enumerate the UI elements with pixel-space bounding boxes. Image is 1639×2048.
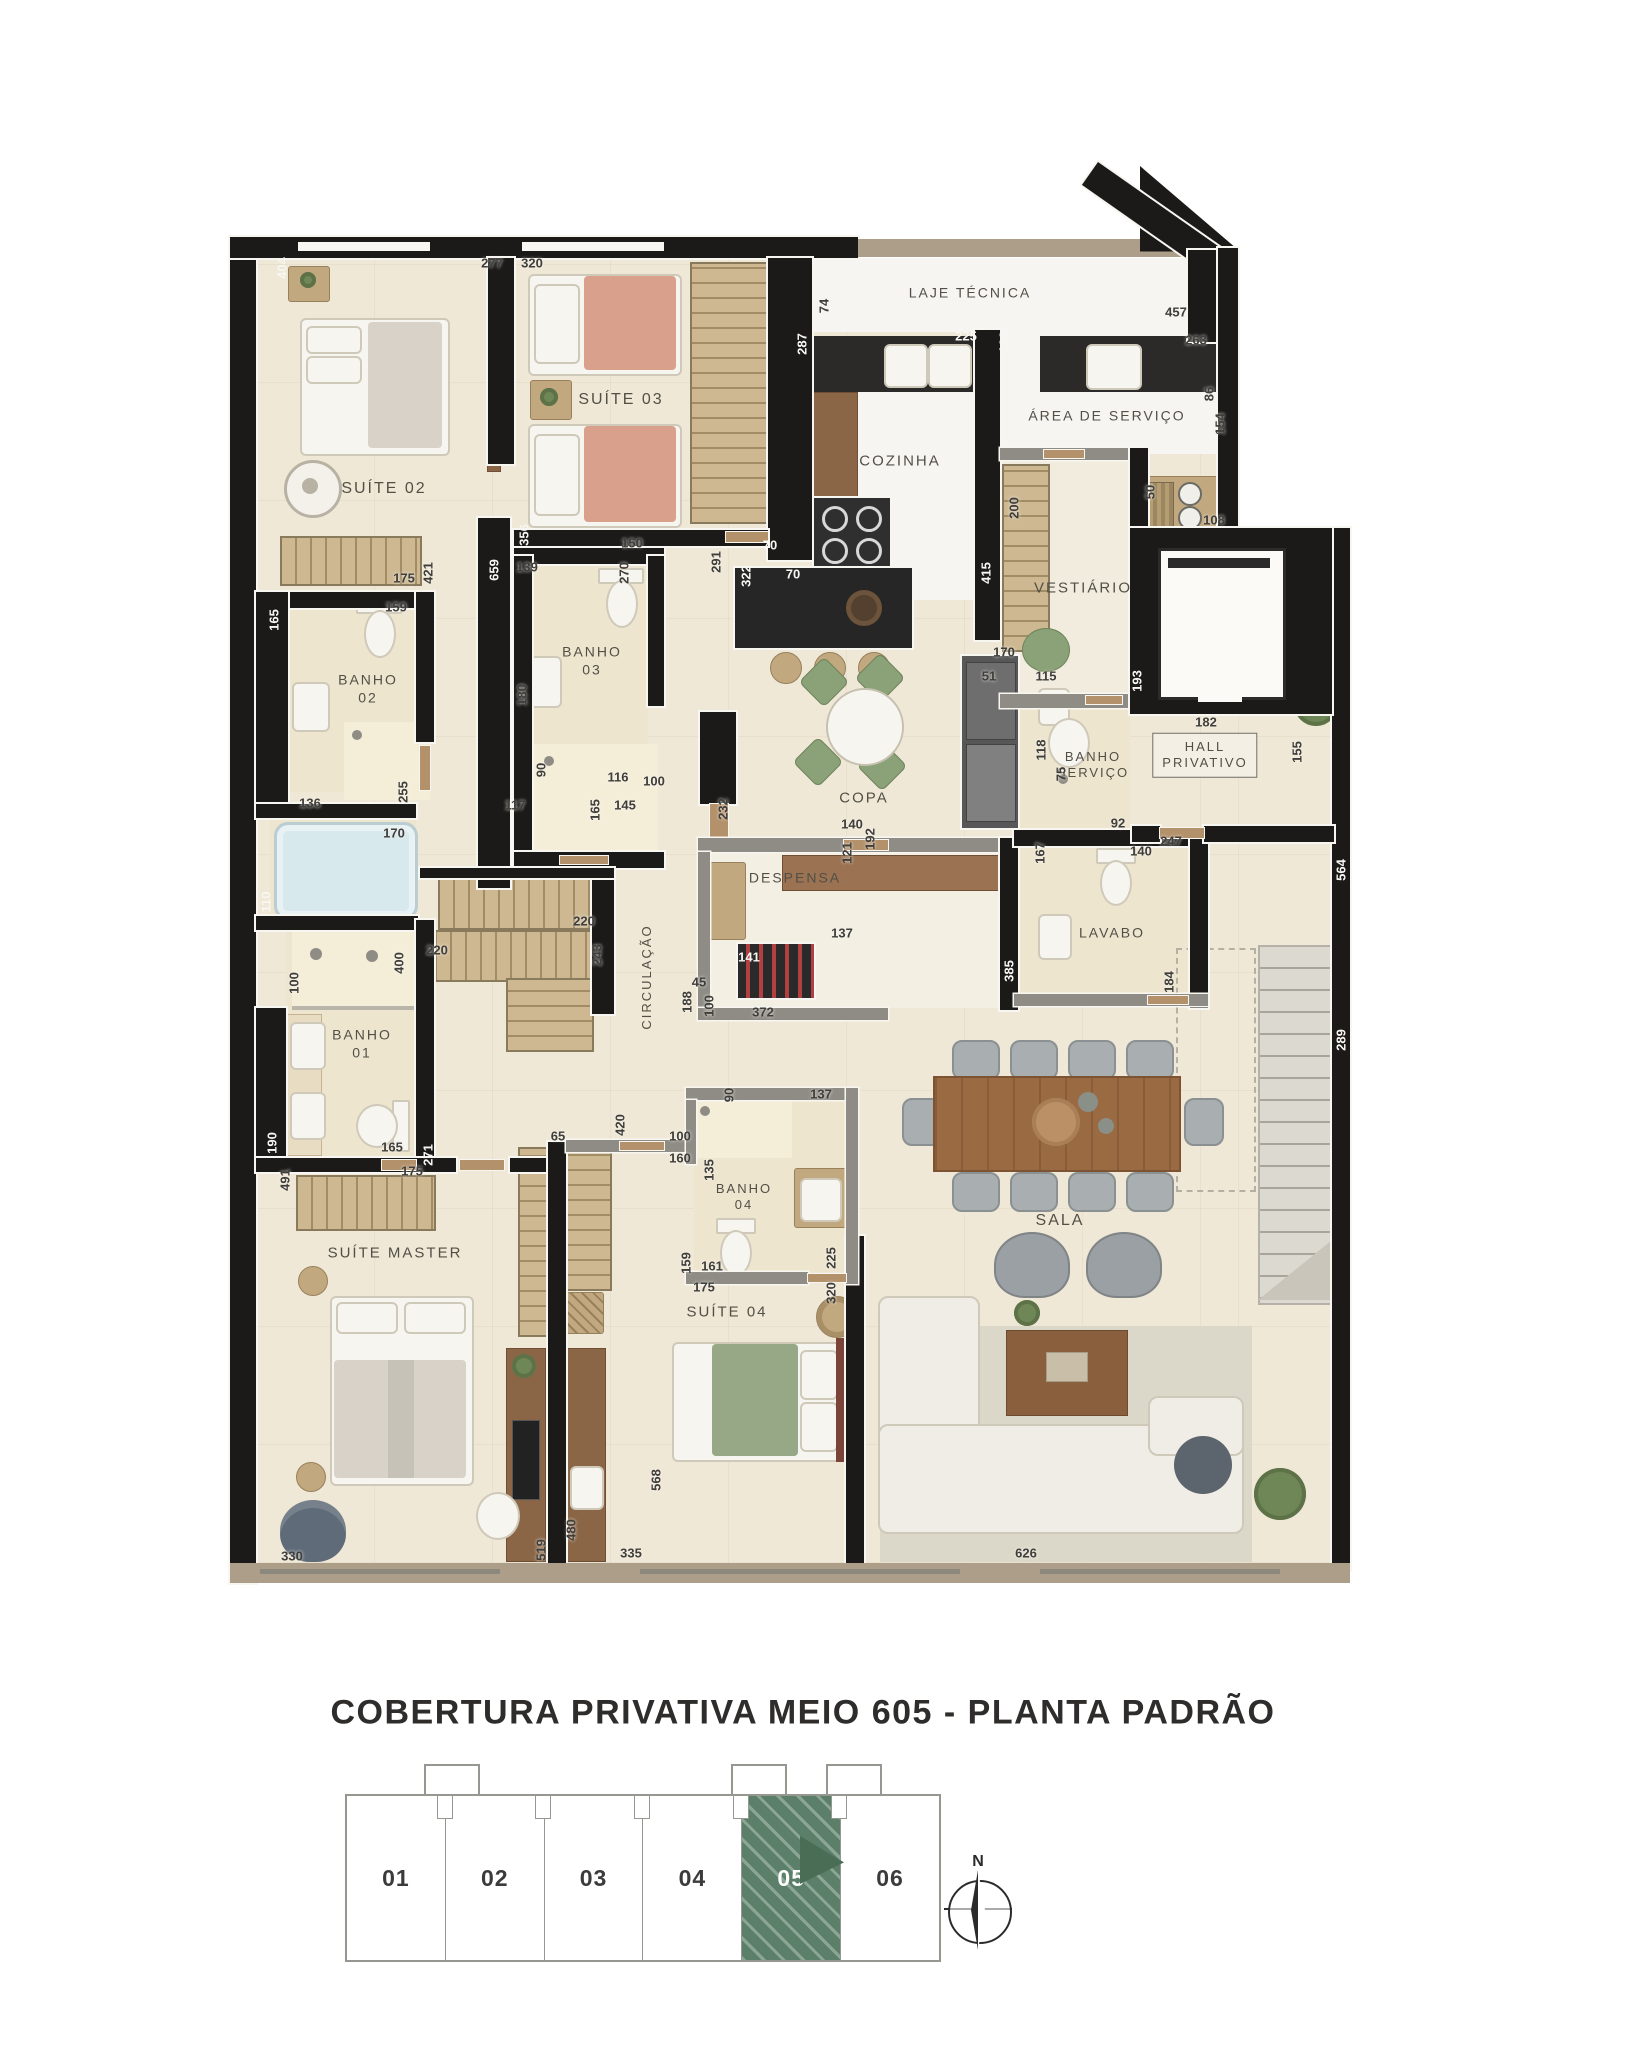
armchair-sala — [1086, 1232, 1162, 1298]
room-label: VESTIÁRIO — [1034, 580, 1132, 599]
dimension-label: 289 — [1334, 1029, 1349, 1051]
wall-master-top-b — [510, 1158, 548, 1172]
room-label: LAJE TÉCNICA — [909, 284, 1032, 302]
sink-lavabo — [1038, 914, 1072, 960]
dimension-label: 117 — [505, 798, 526, 813]
chair-vestiario — [1022, 628, 1070, 672]
armchair-sala — [994, 1232, 1070, 1298]
dimension-label: 90 — [722, 1088, 737, 1102]
dining-chair — [1068, 1172, 1116, 1212]
dimension-label: 182 — [1195, 715, 1217, 730]
service-sink — [1086, 344, 1142, 390]
dimension-label: 400 — [392, 952, 407, 974]
wall-banho04-right — [846, 1088, 858, 1284]
keyplan-notch — [831, 1796, 847, 1819]
dimension-label: 421 — [421, 562, 436, 584]
dryer-icon — [1178, 506, 1202, 530]
dimension-label: 564 — [1334, 859, 1349, 881]
unit-cell-05[interactable]: 05 — [741, 1796, 840, 1960]
dimension-label: 491 — [278, 1169, 293, 1191]
elevator-rail — [1168, 558, 1270, 568]
wall-left-outer — [230, 237, 256, 1583]
hall-closet-1 — [438, 876, 594, 930]
dimension-label: 287 — [795, 333, 810, 355]
dimension-label: 193 — [1130, 670, 1145, 692]
blanket-salmon — [584, 426, 676, 522]
kitchen-sink — [884, 344, 928, 388]
window — [298, 242, 430, 251]
dimension-label: 457 — [1165, 305, 1187, 320]
table-bowl — [1078, 1092, 1098, 1112]
dimension-label: 110 — [259, 892, 274, 913]
room-label: BANHO 03 — [562, 644, 622, 679]
dimension-label: 165 — [381, 1140, 403, 1155]
window-bottom — [260, 1569, 500, 1574]
door-banho02[interactable] — [420, 746, 430, 790]
dimension-label: 415 — [979, 562, 994, 584]
room-label: ÁREA DE SERVIÇO — [1028, 407, 1185, 425]
dining-chair — [952, 1172, 1000, 1212]
plant-sala — [1254, 1468, 1306, 1520]
shower-glass — [292, 1006, 430, 1010]
dimension-label: 291 — [709, 551, 724, 573]
dimension-label: 225 — [955, 329, 977, 344]
keyplan-notch — [733, 1796, 749, 1819]
door-suite-master[interactable] — [460, 1160, 504, 1170]
dimension-label: 247 — [1160, 834, 1182, 849]
dimension-label: 255 — [396, 781, 411, 803]
dimension-label: 190 — [265, 1132, 280, 1154]
dimension-label: 165 — [267, 609, 282, 631]
dimension-label: 270 — [617, 562, 632, 584]
dimension-label: 175 — [401, 1164, 423, 1179]
dimension-label: 116 — [608, 770, 629, 785]
wall-closet-top — [420, 868, 614, 878]
room-label: SUÍTE 04 — [686, 1304, 767, 1323]
door-suite04[interactable] — [620, 1142, 664, 1150]
plant-icon — [300, 272, 316, 288]
wardrobe-suite04-b — [566, 1147, 612, 1291]
keyplan-notch — [634, 1796, 650, 1819]
dimension-label: 170 — [993, 645, 1015, 660]
dimension-label: 659 — [487, 559, 502, 581]
sink-banho02 — [292, 682, 330, 732]
dimension-label: 322 — [739, 565, 754, 587]
sink-banho01 — [290, 1022, 326, 1070]
microwave — [966, 744, 1016, 822]
dimension-label: 159 — [385, 600, 407, 615]
dimension-label: 100 — [702, 995, 717, 1017]
wardrobe-master — [296, 1175, 436, 1231]
dimension-label: 141 — [738, 950, 760, 965]
room-label: BANHO 04 — [716, 1181, 772, 1214]
wall-tub-top — [256, 804, 416, 818]
dimension-label: 136 — [299, 796, 321, 811]
room-label: SUÍTE 03 — [578, 390, 663, 410]
dimension-label: 165 — [588, 799, 603, 821]
dining-chair — [1010, 1040, 1058, 1080]
sink-banho01 — [290, 1092, 326, 1140]
blanket-salmon — [584, 276, 676, 370]
dimension-label: 335 — [620, 1546, 642, 1561]
window-bottom — [1040, 1569, 1280, 1574]
dimension-label: 175 — [693, 1280, 715, 1295]
dimension-label: 135 — [702, 1159, 717, 1181]
dimension-label: 220 — [573, 914, 595, 929]
dimension-label: 277 — [481, 256, 503, 271]
elevator-cab — [1158, 548, 1286, 700]
window-bottom — [640, 1569, 960, 1574]
dimension-label: 137 — [810, 1087, 832, 1102]
wardrobe-suite03 — [690, 262, 772, 524]
dimension-label: 420 — [613, 1114, 628, 1136]
dimension-label: 140 — [841, 817, 863, 832]
wall-banho03-right — [648, 556, 664, 706]
dimension-label: 92 — [1111, 816, 1125, 831]
dining-chair — [1184, 1098, 1224, 1146]
pillow — [306, 326, 362, 354]
floor-shower-banho01 — [292, 928, 430, 1006]
wall-suite03-cozinha — [768, 258, 812, 560]
dimension-label: 65 — [551, 1129, 565, 1144]
room-label: SALA — [1036, 1211, 1085, 1231]
pillow — [404, 1302, 466, 1334]
dimension-label: 568 — [649, 1469, 664, 1491]
plant-icon — [1014, 1300, 1040, 1326]
door-lavabo[interactable] — [1148, 996, 1188, 1004]
dining-chair — [1068, 1040, 1116, 1080]
door-banho04[interactable] — [808, 1274, 846, 1282]
wall-hall-bottom-a — [1132, 826, 1160, 842]
dimension-label: 480 — [564, 1519, 579, 1541]
keyplan-notch — [535, 1796, 551, 1819]
pillow — [336, 1302, 398, 1334]
dimension-label: 139 — [516, 560, 538, 575]
headboard-suite04 — [836, 1338, 846, 1462]
unit-cell-03[interactable]: 03 — [544, 1796, 643, 1960]
dimension-label: 220 — [426, 943, 448, 958]
pillow — [306, 356, 362, 384]
dimension-label: 100 — [669, 1129, 691, 1144]
dimension-label: 154 — [1213, 413, 1228, 435]
burner — [822, 538, 848, 564]
dimension-label: 190 — [997, 331, 1012, 353]
dimension-label: 75 — [1054, 767, 1069, 781]
wall-master-suite04 — [548, 1142, 566, 1563]
room-label: SUÍTE 02 — [341, 479, 426, 499]
door-banho-servico[interactable] — [1086, 696, 1122, 704]
dimension-label: 50 — [1143, 485, 1158, 499]
shower-head-icon — [352, 730, 362, 740]
table-bowl — [1098, 1118, 1114, 1134]
unit-cell-04[interactable]: 04 — [642, 1796, 741, 1960]
dimension-label: 404 — [275, 257, 290, 279]
dimension-label: 70 — [763, 538, 777, 553]
dimension-label: 160 — [669, 1151, 691, 1166]
dimension-label: 330 — [281, 1549, 303, 1564]
wall-right-upper — [1218, 248, 1238, 544]
wall-lavabo-right — [1190, 830, 1208, 1008]
wall-copa-west — [700, 712, 736, 804]
wall-banho02-right — [416, 592, 434, 742]
dimension-label: 100 — [287, 972, 302, 994]
dimension-label: 180 — [515, 684, 530, 706]
pillow — [800, 1402, 838, 1452]
room-label: BANHO 02 — [338, 672, 398, 707]
blanket-green — [712, 1344, 798, 1456]
dimension-label: 155 — [1290, 741, 1305, 763]
pillow — [800, 1350, 838, 1400]
toilet-lavabo — [1100, 860, 1132, 906]
pillow — [534, 434, 580, 516]
dimension-label: 118 — [1034, 740, 1049, 761]
shelf-unit — [566, 1292, 604, 1334]
dining-chair — [1126, 1040, 1174, 1080]
dimension-label: 159 — [679, 1252, 694, 1274]
dimension-label: 115 — [1036, 669, 1057, 684]
dimension-label: 74 — [817, 299, 832, 313]
wall-despensa-bottom — [698, 1008, 888, 1020]
keyplan-notch — [437, 1796, 453, 1819]
door-banho03[interactable] — [560, 856, 608, 864]
dimension-label: 372 — [752, 1005, 774, 1020]
double-height-void — [1176, 948, 1256, 1192]
kitchen-sink — [928, 344, 972, 388]
wall-cozinha-servico — [975, 330, 1000, 640]
dimension-label: 100 — [643, 774, 665, 789]
wall-suite04-sala — [846, 1236, 864, 1563]
dining-chair — [1126, 1172, 1174, 1212]
blanket-fold — [388, 1360, 414, 1478]
wall-banho03-left — [514, 556, 532, 868]
hall-closet-3 — [506, 978, 594, 1052]
kitchen-island — [735, 568, 912, 648]
unit-cell-01[interactable]: 01 — [347, 1796, 445, 1960]
table-centerpiece — [1032, 1098, 1080, 1146]
dimension-label: 70 — [786, 567, 800, 582]
laptop — [570, 1466, 604, 1510]
wall-suite02-03 — [488, 258, 514, 464]
toilet-banho03 — [606, 580, 638, 628]
dimension-label: 243 — [590, 944, 605, 966]
plan-title: COBERTURA PRIVATIVA MEIO 605 - PLANTA PA… — [330, 1694, 1275, 1733]
burner — [856, 506, 882, 532]
shower-head-icon — [310, 948, 322, 960]
wall-tub-bottom — [256, 916, 418, 930]
plant-icon — [512, 1354, 536, 1378]
room-label: BANHO 01 — [332, 1027, 392, 1062]
desk-chair-master — [476, 1492, 520, 1540]
room-label: HALL PRIVATIVO — [1152, 733, 1257, 778]
wardrobe-vestiario — [1002, 464, 1050, 652]
dimension-label: 192 — [863, 828, 878, 850]
bedside-lamp — [298, 1266, 328, 1296]
dimension-label: 150 — [621, 536, 643, 551]
dining-chair — [952, 1040, 1000, 1080]
stool — [770, 652, 802, 684]
dimension-label: 51 — [982, 669, 996, 684]
copa-round-table — [826, 688, 904, 766]
floor-plan-page: SUÍTE 02SUÍTE 03LAJE TÉCNICACOZINHAÁREA … — [0, 0, 1639, 2048]
dimension-label: 140 — [1130, 844, 1152, 859]
pouf — [1174, 1436, 1232, 1494]
ceiling-fan-hub — [302, 478, 318, 494]
dimension-label: 626 — [1015, 1546, 1037, 1561]
bedside-lamp — [296, 1462, 326, 1492]
wall-despensa-east — [1000, 838, 1018, 1010]
dimension-label: 90 — [534, 763, 549, 777]
dimension-label: 356 — [517, 524, 532, 546]
shower-head-icon — [700, 1106, 710, 1116]
dining-chair — [1010, 1172, 1058, 1212]
unit-cell-02[interactable]: 02 — [445, 1796, 544, 1960]
dimension-label: 320 — [824, 1282, 839, 1304]
dimension-label: 170 — [383, 826, 405, 841]
room-label: COPA — [839, 790, 888, 809]
dimension-label: 86 — [1202, 387, 1217, 401]
washer-icon — [1178, 482, 1202, 506]
window — [522, 242, 664, 251]
tv-master — [512, 1420, 540, 1500]
dimension-label: 225 — [824, 1247, 839, 1269]
door-suite03[interactable] — [726, 532, 768, 542]
dimension-label: 167 — [1033, 842, 1048, 864]
dimension-label: 175 — [393, 571, 415, 586]
burner — [856, 538, 882, 564]
sink-banho04 — [800, 1178, 842, 1222]
dimension-label: 45 — [692, 975, 706, 990]
room-label: SUÍTE MASTER — [328, 1245, 463, 1264]
toilet-banho02 — [364, 610, 396, 658]
room-label: CIRCULAÇÃO — [639, 924, 655, 1029]
dimension-label: 320 — [521, 256, 543, 271]
dimension-label: 200 — [1007, 497, 1022, 519]
dimension-label: 263 — [1185, 333, 1207, 348]
compass-north-label: N — [972, 1853, 984, 1871]
wardrobe-suite04-a — [518, 1147, 552, 1337]
fruit-bowl — [846, 590, 882, 626]
dimension-label: 232 — [716, 798, 731, 820]
dimension-label: 161 — [701, 1259, 723, 1274]
room-label: COZINHA — [859, 453, 941, 472]
dimension-label: 519 — [534, 1539, 549, 1561]
pillow — [534, 284, 580, 364]
room-label: LAVABO — [1079, 924, 1145, 942]
wall-hall-bottom-b — [1204, 826, 1334, 842]
dimension-label: 188 — [680, 991, 695, 1013]
door-vestiario[interactable] — [1044, 450, 1084, 458]
dimension-label: 121 — [840, 842, 855, 864]
dimension-label: 385 — [1002, 960, 1017, 982]
dimension-label: 137 — [831, 926, 853, 941]
dimension-label: 145 — [614, 798, 636, 813]
dimension-label: 184 — [1162, 971, 1177, 993]
elevator-door[interactable] — [1198, 690, 1242, 702]
shower-head-icon — [366, 950, 378, 962]
room-label: DESPENSA — [749, 869, 841, 887]
coffee-table-tray — [1046, 1352, 1088, 1382]
blanket-suite02 — [368, 322, 442, 448]
plant-icon — [540, 388, 558, 406]
dimension-label: 108 — [1203, 513, 1225, 528]
unit-selector: 010203040506 — [345, 1794, 941, 1962]
burner — [822, 506, 848, 532]
unit-cell-06[interactable]: 06 — [840, 1796, 939, 1960]
toilet-banho04 — [720, 1230, 752, 1276]
